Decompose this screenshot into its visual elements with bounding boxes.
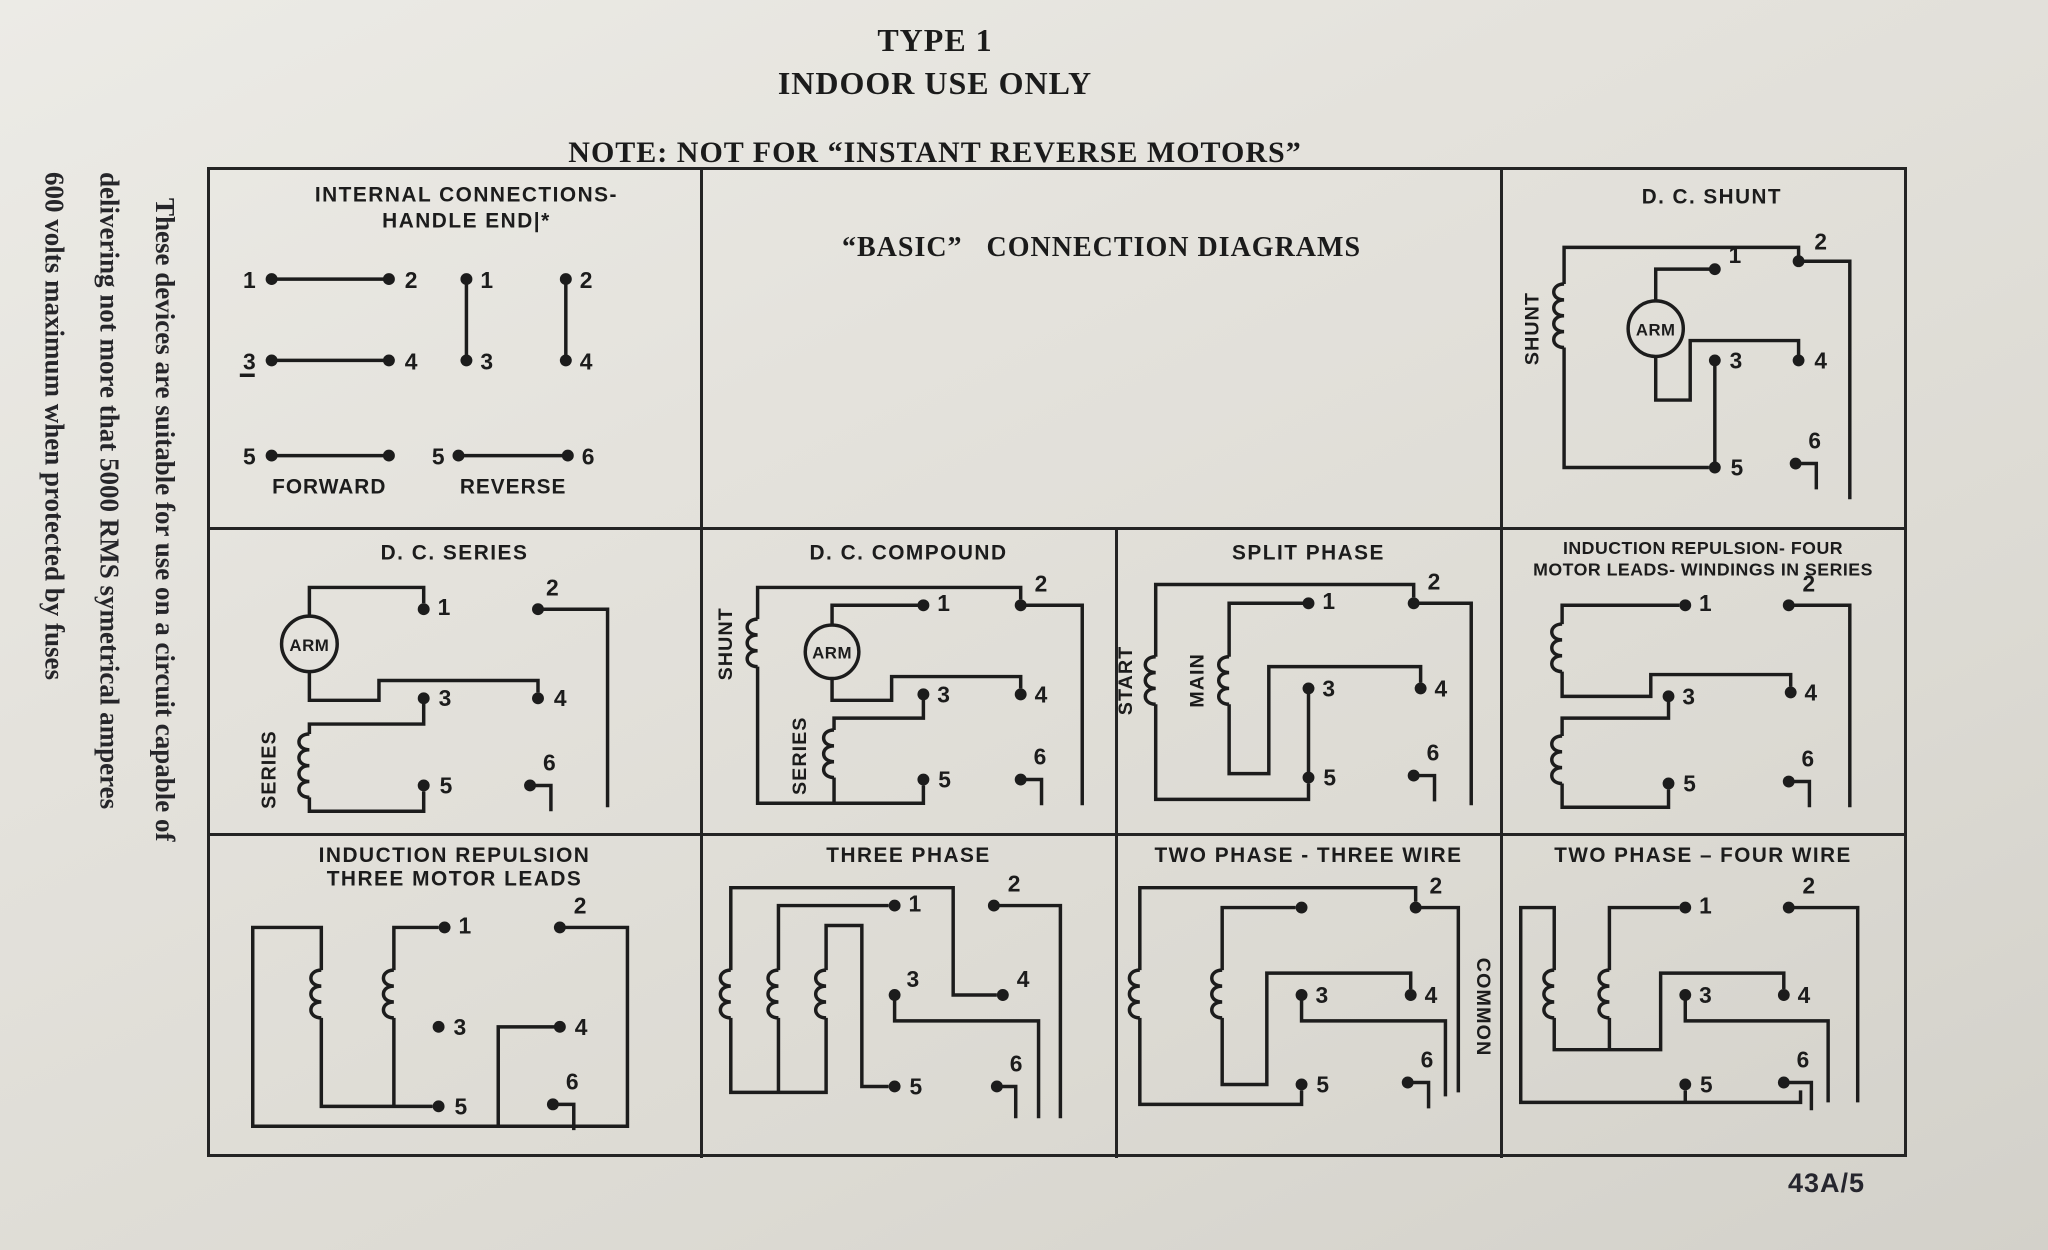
terminal-label: 5	[1323, 764, 1336, 790]
terminal-label: 3	[480, 348, 493, 374]
terminal-label: 5	[440, 772, 453, 798]
coil-icon	[383, 970, 393, 1018]
start-coil-label: START	[1118, 646, 1137, 715]
wires	[1562, 605, 1850, 807]
reverse-label: REVERSE	[460, 475, 567, 498]
terminal-label: 5	[432, 444, 445, 470]
terminal-label: 3	[1682, 683, 1695, 709]
armature-label: ARM	[812, 644, 852, 663]
terminal-dots	[917, 599, 1026, 785]
cell-two-phase-three-wire: TWO PHASE - THREE WIRE COMMON	[1118, 836, 1503, 1158]
internal-connections-diagram: INTERNAL CONNECTIONS- HANDLE END|*	[210, 170, 700, 527]
terminal-label: 2	[1428, 568, 1441, 594]
terminal-label: 4	[1017, 966, 1030, 992]
terminal-label: 1	[909, 891, 922, 917]
terminal-label: 4	[1804, 679, 1817, 705]
cell-title: THREE MOTOR LEADS	[327, 868, 583, 891]
forward-switch-wires	[240, 279, 389, 456]
cell-title: SPLIT PHASE	[1232, 542, 1385, 565]
cell-two-phase-four-wire: TWO PHASE – FOUR WIRE	[1503, 836, 1904, 1158]
terminal-label: 3	[907, 966, 920, 992]
terminal-label: 2	[405, 267, 418, 293]
cell-title: INDUCTION REPULSION	[319, 844, 591, 867]
terminal-label: 4	[554, 685, 567, 711]
cell-dc-compound: D. C. COMPOUND SHUNT SERIES ARM	[703, 530, 1118, 833]
coil-icon	[1599, 970, 1609, 1018]
wires	[1564, 247, 1850, 499]
terminal-dots	[266, 273, 574, 461]
terminal-label: 4	[1425, 982, 1438, 1008]
terminal-label: 2	[1008, 871, 1021, 897]
terminal-label: 2	[1035, 570, 1048, 596]
three-phase-diagram: THREE PHASE	[703, 836, 1115, 1158]
terminal-label: 5	[1683, 770, 1696, 796]
page-header: TYPE 1 INDOOR USE ONLY NOTE: NOT FOR “IN…	[210, 22, 1660, 170]
terminal-dots	[1679, 902, 1794, 1091]
coil-icon	[824, 730, 834, 778]
cell-dc-shunt: D. C. SHUNT SHUNT ARM	[1503, 170, 1904, 527]
side-note-line: 600 volts maximum when protected by fuse…	[26, 172, 81, 967]
forward-label: FORWARD	[272, 475, 386, 498]
coil-icon	[1145, 657, 1155, 705]
terminal-label: 6	[543, 750, 556, 776]
dc-series-diagram: D. C. SERIES ARM SERIES	[210, 530, 700, 833]
terminal-label: 6	[566, 1068, 579, 1094]
scanned-diagram-sheet: { "page": { "title_line1": "TYPE 1", "ti…	[0, 0, 2048, 1250]
cell-title: D. C. COMPOUND	[810, 542, 1008, 565]
diagram-table: INTERNAL CONNECTIONS- HANDLE END|*	[207, 167, 1907, 1157]
cell-title: INDUCTION REPULSION- FOUR	[1563, 538, 1843, 558]
terminal-label: 1	[1699, 892, 1712, 918]
terminal-label: 6	[1421, 1047, 1434, 1073]
terminal-label: 2	[1803, 873, 1816, 899]
terminal-label: 2	[1430, 873, 1443, 899]
terminal-label: 1	[480, 267, 493, 293]
terminal-label: 4	[1435, 675, 1448, 701]
table-row-2: D. C. SERIES ARM SERIES	[210, 530, 1904, 836]
terminal-label: 3	[1322, 675, 1335, 701]
coil-icon	[299, 734, 309, 797]
series-coil-label: SERIES	[789, 717, 811, 796]
reverse-switch-wires	[458, 279, 567, 456]
terminal-label: 1	[1322, 588, 1335, 614]
dc-shunt-diagram: D. C. SHUNT SHUNT ARM	[1503, 170, 1904, 527]
terminal-label: 6	[1010, 1051, 1023, 1077]
terminal-label: 5	[938, 766, 951, 792]
shunt-coil-label: SHUNT	[1522, 292, 1544, 365]
terminal-label: 1	[937, 590, 950, 616]
terminal-label: 5	[243, 444, 256, 470]
coil-icon	[311, 970, 321, 1018]
terminal-label: 3	[1315, 982, 1328, 1008]
terminal-label: 6	[1802, 746, 1815, 772]
cell-induction-repulsion-three: INDUCTION REPULSION THREE MOTOR LEADS	[210, 836, 703, 1158]
induction-repulsion-four-diagram: INDUCTION REPULSION- FOUR MOTOR LEADS- W…	[1503, 530, 1904, 833]
terminal-label: 2	[1803, 570, 1816, 596]
armature-label: ARM	[1636, 321, 1676, 340]
terminal-label: 3	[454, 1014, 467, 1040]
terminal-label: 3	[1730, 347, 1743, 373]
cell-title: HANDLE END|*	[382, 210, 551, 233]
coil-icon	[1552, 624, 1562, 672]
terminal-label: 4	[1798, 982, 1811, 1008]
cell-title: INTERNAL CONNECTIONS-	[315, 184, 618, 207]
terminal-dots	[1709, 255, 1805, 473]
wires	[1521, 908, 1858, 1111]
two-phase-three-wire-diagram: TWO PHASE - THREE WIRE COMMON	[1118, 836, 1500, 1158]
cell-induction-repulsion-four: INDUCTION REPULSION- FOUR MOTOR LEADS- W…	[1503, 530, 1904, 833]
terminal-label: 6	[1034, 744, 1047, 770]
terminal-label: 1	[438, 594, 451, 620]
coil-icon	[1544, 970, 1554, 1018]
terminal-label: 4	[1035, 681, 1048, 707]
cell-dc-series: D. C. SERIES ARM SERIES	[210, 530, 703, 833]
page-title: TYPE 1	[210, 22, 1660, 59]
terminal-label: 1	[1699, 590, 1712, 616]
terminal-label: 4	[1814, 347, 1827, 373]
series-coil-label: SERIES	[259, 730, 281, 809]
main-coil-label: MAIN	[1186, 653, 1208, 708]
terminal-label: 3	[439, 685, 452, 711]
coil-icon	[1554, 284, 1564, 347]
coil-icon	[816, 970, 826, 1018]
induction-repulsion-three-diagram: INDUCTION REPULSION THREE MOTOR LEADS	[210, 836, 700, 1158]
armature-label: ARM	[289, 636, 329, 655]
coil-icon	[1552, 736, 1562, 784]
terminal-label: 2	[580, 267, 593, 293]
terminal-label: 5	[1731, 454, 1744, 480]
terminal-dots	[1303, 597, 1427, 783]
page-subtitle: INDOOR USE ONLY	[210, 65, 1660, 102]
terminal-label: 5	[1700, 1071, 1713, 1097]
terminal-label: 2	[574, 893, 587, 919]
terminal-label: 6	[1797, 1046, 1810, 1072]
coil-icon	[1129, 970, 1139, 1018]
document-number: 43A/5	[1788, 1168, 1865, 1199]
basic-title: “BASIC” CONNECTION DIAGRAMS	[842, 232, 1361, 264]
terminal-label: 1	[1729, 242, 1742, 268]
terminal-label: 6	[1808, 428, 1821, 454]
coil-icon	[1212, 970, 1222, 1018]
terminal-label: 1	[458, 912, 471, 938]
warning-note: NOTE: NOT FOR “INSTANT REVERSE MOTORS”	[210, 136, 1660, 170]
terminal-label: 4	[405, 348, 418, 374]
terminal-label: 5	[909, 1073, 922, 1099]
terminal-label: 4	[575, 1014, 588, 1040]
table-row-3: INDUCTION REPULSION THREE MOTOR LEADS	[210, 836, 1904, 1158]
terminal-label: 4	[580, 348, 593, 374]
two-phase-four-wire-diagram: TWO PHASE – FOUR WIRE	[1503, 836, 1904, 1158]
terminal-label: 6	[1427, 740, 1440, 766]
cell-title: D. C. SHUNT	[1642, 186, 1782, 209]
coil-icon	[1219, 657, 1229, 705]
side-note-rotated: These devices are suitable for use on a …	[26, 172, 192, 967]
cell-three-phase: THREE PHASE	[703, 836, 1118, 1158]
terminal-label: 2	[1814, 228, 1827, 254]
terminal-label: 3	[937, 681, 950, 707]
cell-title: TWO PHASE - THREE WIRE	[1154, 844, 1462, 867]
coil-icon	[747, 619, 757, 667]
terminal-label: 6	[582, 444, 595, 470]
split-phase-diagram: SPLIT PHASE START MAIN	[1118, 530, 1500, 833]
terminal-label: 3	[243, 348, 256, 374]
cell-title: THREE PHASE	[826, 844, 991, 867]
dc-compound-diagram: D. C. COMPOUND SHUNT SERIES ARM	[703, 530, 1115, 833]
table-row-1: INTERNAL CONNECTIONS- HANDLE END|*	[210, 170, 1904, 530]
coil-icon	[768, 970, 778, 1018]
side-note-line: delivering not more that 5000 RMS symetr…	[81, 172, 136, 967]
common-wire-label: COMMON	[1472, 958, 1494, 1057]
terminal-dots	[418, 603, 544, 791]
cell-internal-connections: INTERNAL CONNECTIONS- HANDLE END|*	[210, 170, 703, 527]
terminal-label: 5	[455, 1093, 468, 1119]
shunt-coil-label: SHUNT	[715, 607, 737, 680]
cell-title: TWO PHASE – FOUR WIRE	[1554, 844, 1852, 867]
cell-title: D. C. SERIES	[381, 542, 529, 565]
cell-split-phase: SPLIT PHASE START MAIN	[1118, 530, 1503, 833]
cell-basic-connection-diagrams: “BASIC” CONNECTION DIAGRAMS	[703, 170, 1503, 527]
side-note-line: These devices are suitable for use on a …	[137, 172, 192, 967]
terminal-label: 5	[1316, 1071, 1329, 1097]
terminal-label: 2	[546, 574, 559, 600]
coil-icon	[720, 970, 730, 1018]
terminal-label: 1	[243, 267, 256, 293]
terminal-label: 3	[1699, 982, 1712, 1008]
cell-title: MOTOR LEADS- WINDINGS IN SERIES	[1533, 560, 1873, 580]
